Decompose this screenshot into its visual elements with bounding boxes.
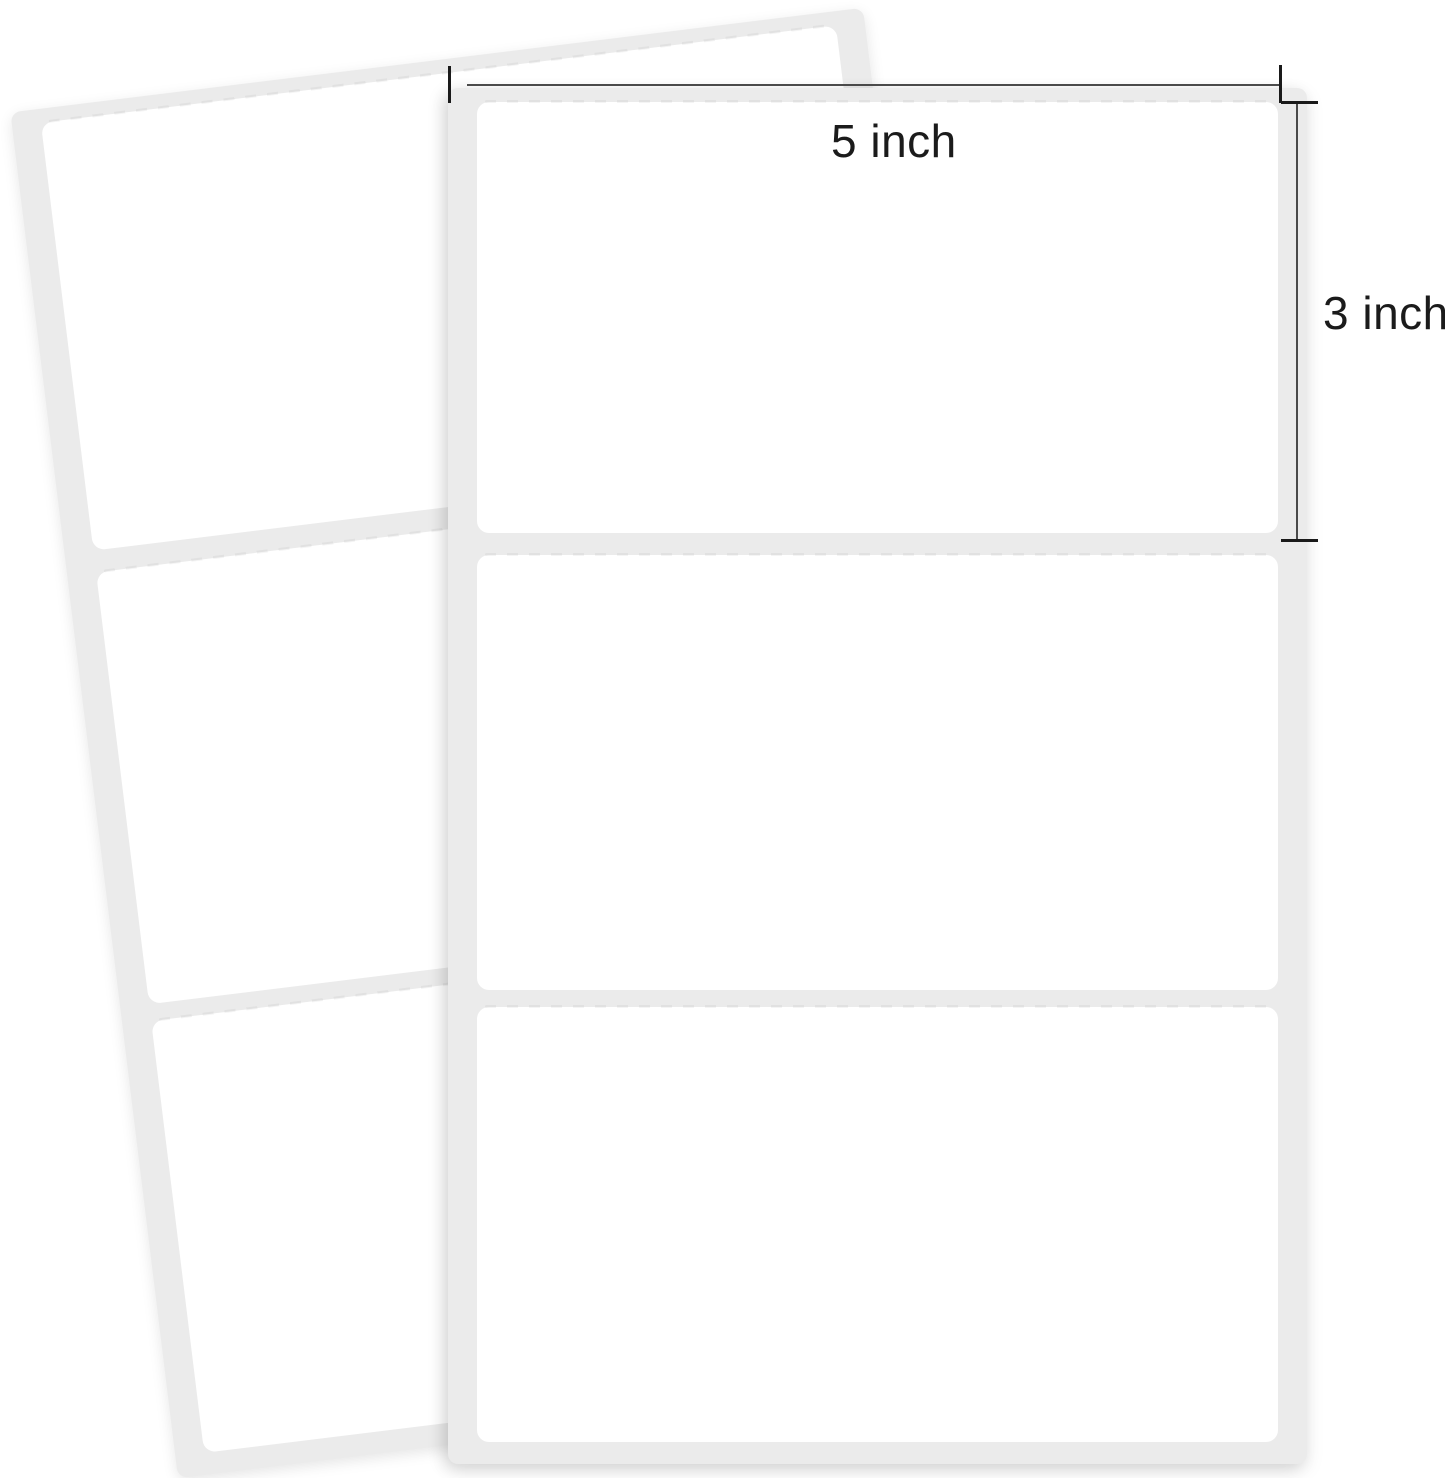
width-dimension-label: 5 inch — [831, 118, 957, 164]
height-measure-tick-top — [1281, 101, 1318, 104]
width-measure-line — [467, 84, 1280, 86]
front-label-sheet — [448, 88, 1307, 1464]
width-measure-tick-right — [1279, 65, 1282, 103]
height-dimension-label: 3 inch — [1323, 290, 1445, 336]
blank-label — [477, 555, 1278, 990]
product-image: 5 inch 3 inch — [0, 0, 1445, 1478]
height-measure-line — [1296, 103, 1298, 540]
blank-label — [477, 1007, 1278, 1442]
height-measure-tick-bottom — [1281, 539, 1318, 542]
width-measure-tick-left — [448, 66, 451, 103]
